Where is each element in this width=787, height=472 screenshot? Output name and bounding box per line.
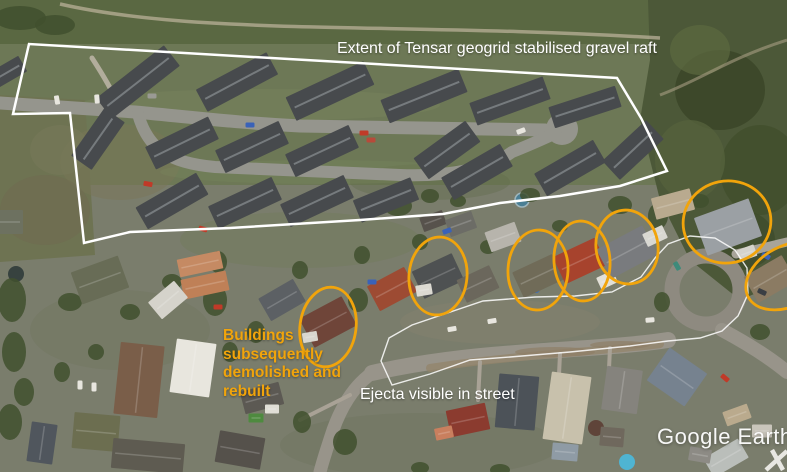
google-earth-watermark: Google Earth bbox=[657, 424, 787, 450]
demolished-label-line: demolished and bbox=[223, 364, 353, 383]
demolished-buildings-label: Buildings subsequently demolished and re… bbox=[223, 327, 353, 401]
ejecta-street-label: Ejecta visible in street bbox=[360, 386, 515, 404]
geogrid-extent-label: Extent of Tensar geogrid stabilised grav… bbox=[337, 40, 657, 58]
demolished-label-line: subsequently bbox=[223, 346, 353, 365]
google-earth-map-viewport[interactable]: Extent of Tensar geogrid stabilised grav… bbox=[0, 0, 787, 472]
demolished-label-line: rebuilt bbox=[223, 383, 353, 402]
demolished-label-line: Buildings bbox=[223, 327, 353, 346]
